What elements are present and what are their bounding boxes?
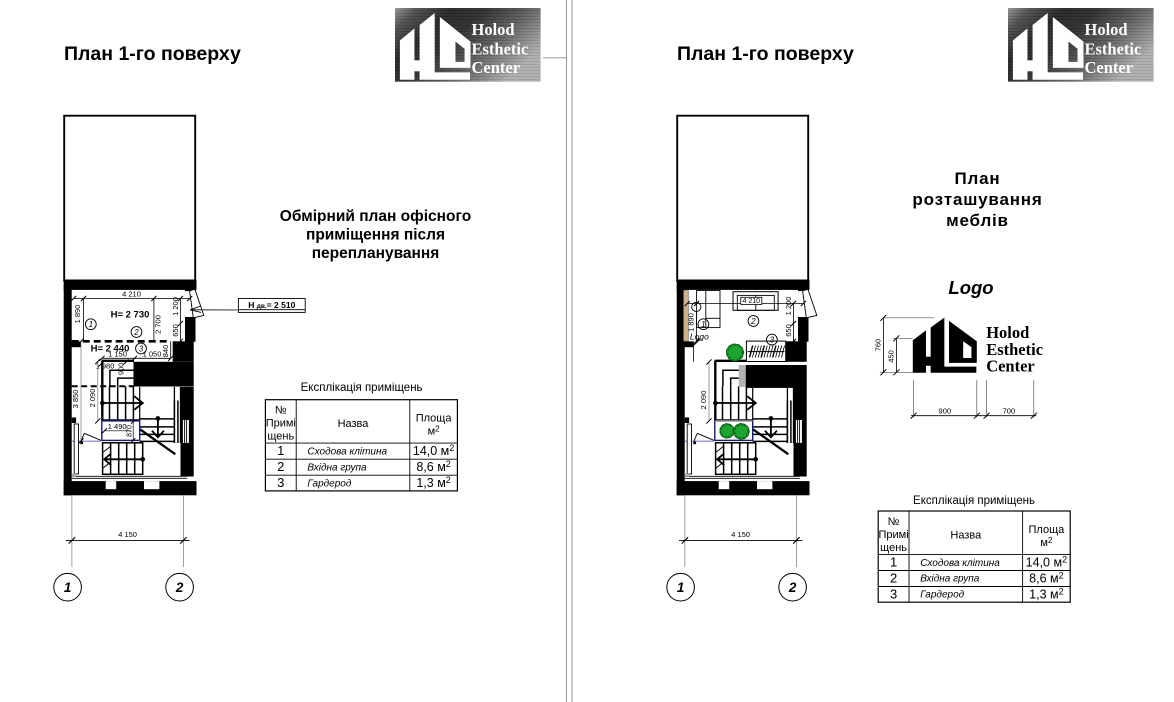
svg-text:Примі: Примі <box>266 418 296 430</box>
svg-text:2 090: 2 090 <box>699 391 708 410</box>
svg-text:План: План <box>955 169 1001 188</box>
svg-text:14,0 м2: 14,0 м2 <box>1026 555 1067 570</box>
svg-text:4 150: 4 150 <box>118 530 137 539</box>
svg-text:1 980: 1 980 <box>96 361 115 370</box>
svg-text:2 090: 2 090 <box>88 389 97 408</box>
svg-text:Logo: Logo <box>948 277 993 298</box>
svg-text:14,0 м2: 14,0 м2 <box>413 443 454 458</box>
svg-text:1: 1 <box>89 320 93 329</box>
svg-text:900: 900 <box>117 363 126 376</box>
svg-text:розташування: розташування <box>912 190 1042 209</box>
svg-text:450: 450 <box>887 350 896 363</box>
svg-text:1 150: 1 150 <box>108 349 127 358</box>
svg-text:перепланування: перепланування <box>312 245 440 262</box>
svg-text:щень: щень <box>267 431 294 443</box>
svg-text:3: 3 <box>890 586 897 601</box>
svg-text:870: 870 <box>127 425 134 437</box>
svg-text:План 1-го поверху: План 1-го поверху <box>677 43 854 65</box>
svg-text:1,3 м2: 1,3 м2 <box>416 475 450 490</box>
svg-text:Сходова клітина: Сходова клітина <box>920 558 1000 569</box>
svg-text:№: № <box>275 405 287 417</box>
svg-text:2: 2 <box>277 459 284 474</box>
svg-text:№: № <box>888 516 900 528</box>
svg-text:4 210: 4 210 <box>743 298 761 305</box>
svg-text:Назва: Назва <box>950 530 982 542</box>
svg-text:2: 2 <box>890 570 897 585</box>
svg-text:1: 1 <box>277 443 284 458</box>
svg-text:Обмірний план офісного: Обмірний план офісного <box>280 208 471 225</box>
svg-text:Вхідна група: Вхідна група <box>307 462 367 473</box>
svg-text:1 050: 1 050 <box>143 349 162 358</box>
svg-text:650: 650 <box>784 324 793 337</box>
svg-text:4 150: 4 150 <box>731 530 750 539</box>
svg-text:900: 900 <box>939 407 952 416</box>
svg-text:Holod: Holod <box>472 20 515 39</box>
svg-text:1 890: 1 890 <box>686 313 695 332</box>
svg-text:2: 2 <box>133 328 139 337</box>
svg-text:700: 700 <box>1003 407 1016 416</box>
svg-text:2 700: 2 700 <box>154 315 163 334</box>
svg-text:1: 1 <box>677 580 685 595</box>
svg-text:1 200: 1 200 <box>171 297 180 316</box>
svg-text:3: 3 <box>770 335 775 344</box>
svg-text:760: 760 <box>874 339 883 352</box>
svg-text:Center: Center <box>1085 58 1134 77</box>
svg-text:Esthetic: Esthetic <box>472 39 529 58</box>
svg-text:Експлікація приміщень: Експлікація приміщень <box>913 495 1035 507</box>
svg-text:1: 1 <box>64 580 72 595</box>
svg-text:Гардерод: Гардерод <box>920 590 964 601</box>
svg-text:Площа: Площа <box>416 413 453 425</box>
svg-text:840: 840 <box>161 345 170 358</box>
svg-text:1 890: 1 890 <box>73 305 82 324</box>
svg-text:Площа: Площа <box>1029 524 1066 536</box>
svg-text:4 210: 4 210 <box>122 289 141 298</box>
svg-text:меблів: меблів <box>946 211 1009 230</box>
svg-text:3: 3 <box>277 475 284 490</box>
svg-text:Holod: Holod <box>1085 20 1128 39</box>
svg-text:Назва: Назва <box>338 418 370 430</box>
svg-text:Примі: Примі <box>879 529 909 541</box>
svg-text:1: 1 <box>890 555 897 570</box>
svg-text:приміщення після: приміщення після <box>306 227 445 244</box>
svg-text:2: 2 <box>175 580 184 595</box>
svg-text:1 200: 1 200 <box>784 297 793 316</box>
svg-text:1: 1 <box>701 320 705 329</box>
svg-text:Esthetic: Esthetic <box>1085 39 1142 58</box>
svg-text:8,6 м2: 8,6 м2 <box>416 459 450 474</box>
svg-text:3 850: 3 850 <box>71 390 80 409</box>
svg-text:Гардерод: Гардерод <box>307 478 351 489</box>
svg-text:План 1-го поверху: План 1-го поверху <box>64 43 241 65</box>
svg-text:H= 2 730: H= 2 730 <box>111 310 150 321</box>
svg-text:Center: Center <box>472 58 521 77</box>
svg-text:Вхідна група: Вхідна група <box>920 574 980 585</box>
svg-text:1,3 м2: 1,3 м2 <box>1029 586 1063 601</box>
svg-text:Center: Center <box>986 357 1035 376</box>
svg-text:2: 2 <box>788 580 797 595</box>
svg-text:2: 2 <box>750 317 756 326</box>
svg-text:щень: щень <box>880 542 907 554</box>
svg-text:650: 650 <box>171 324 180 337</box>
svg-text:1 490: 1 490 <box>108 422 127 431</box>
svg-text:Н дв.= 2 510: Н дв.= 2 510 <box>248 300 295 310</box>
svg-text:Сходова клітина: Сходова клітина <box>307 447 387 458</box>
svg-text:Експлікація приміщень: Експлікація приміщень <box>301 382 423 394</box>
svg-text:8,6 м2: 8,6 м2 <box>1029 570 1063 585</box>
